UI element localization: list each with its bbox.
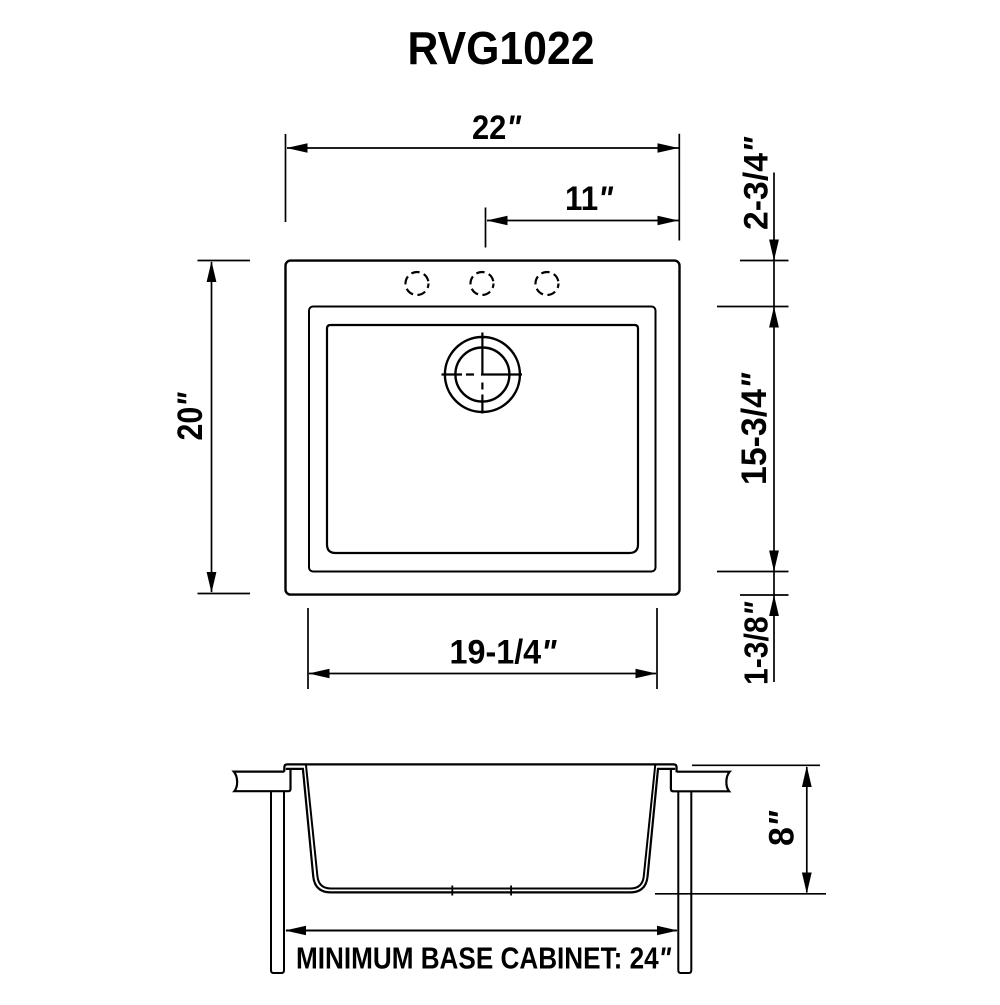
svg-text:19-1/4": 19-1/4" (450, 634, 558, 672)
svg-text:MINIMUM BASE CABINET: 24": MINIMUM BASE CABINET: 24" (296, 942, 671, 976)
svg-text:20": 20" (171, 392, 210, 440)
svg-text:22": 22" (472, 109, 522, 147)
svg-text:8": 8" (763, 811, 802, 846)
svg-text:11": 11" (565, 180, 614, 218)
svg-text:2-3/4": 2-3/4" (738, 136, 776, 230)
svg-text:15-3/4": 15-3/4" (735, 373, 774, 485)
svg-text:RVG1022: RVG1022 (408, 22, 595, 74)
svg-text:1-3/8": 1-3/8" (738, 602, 775, 685)
